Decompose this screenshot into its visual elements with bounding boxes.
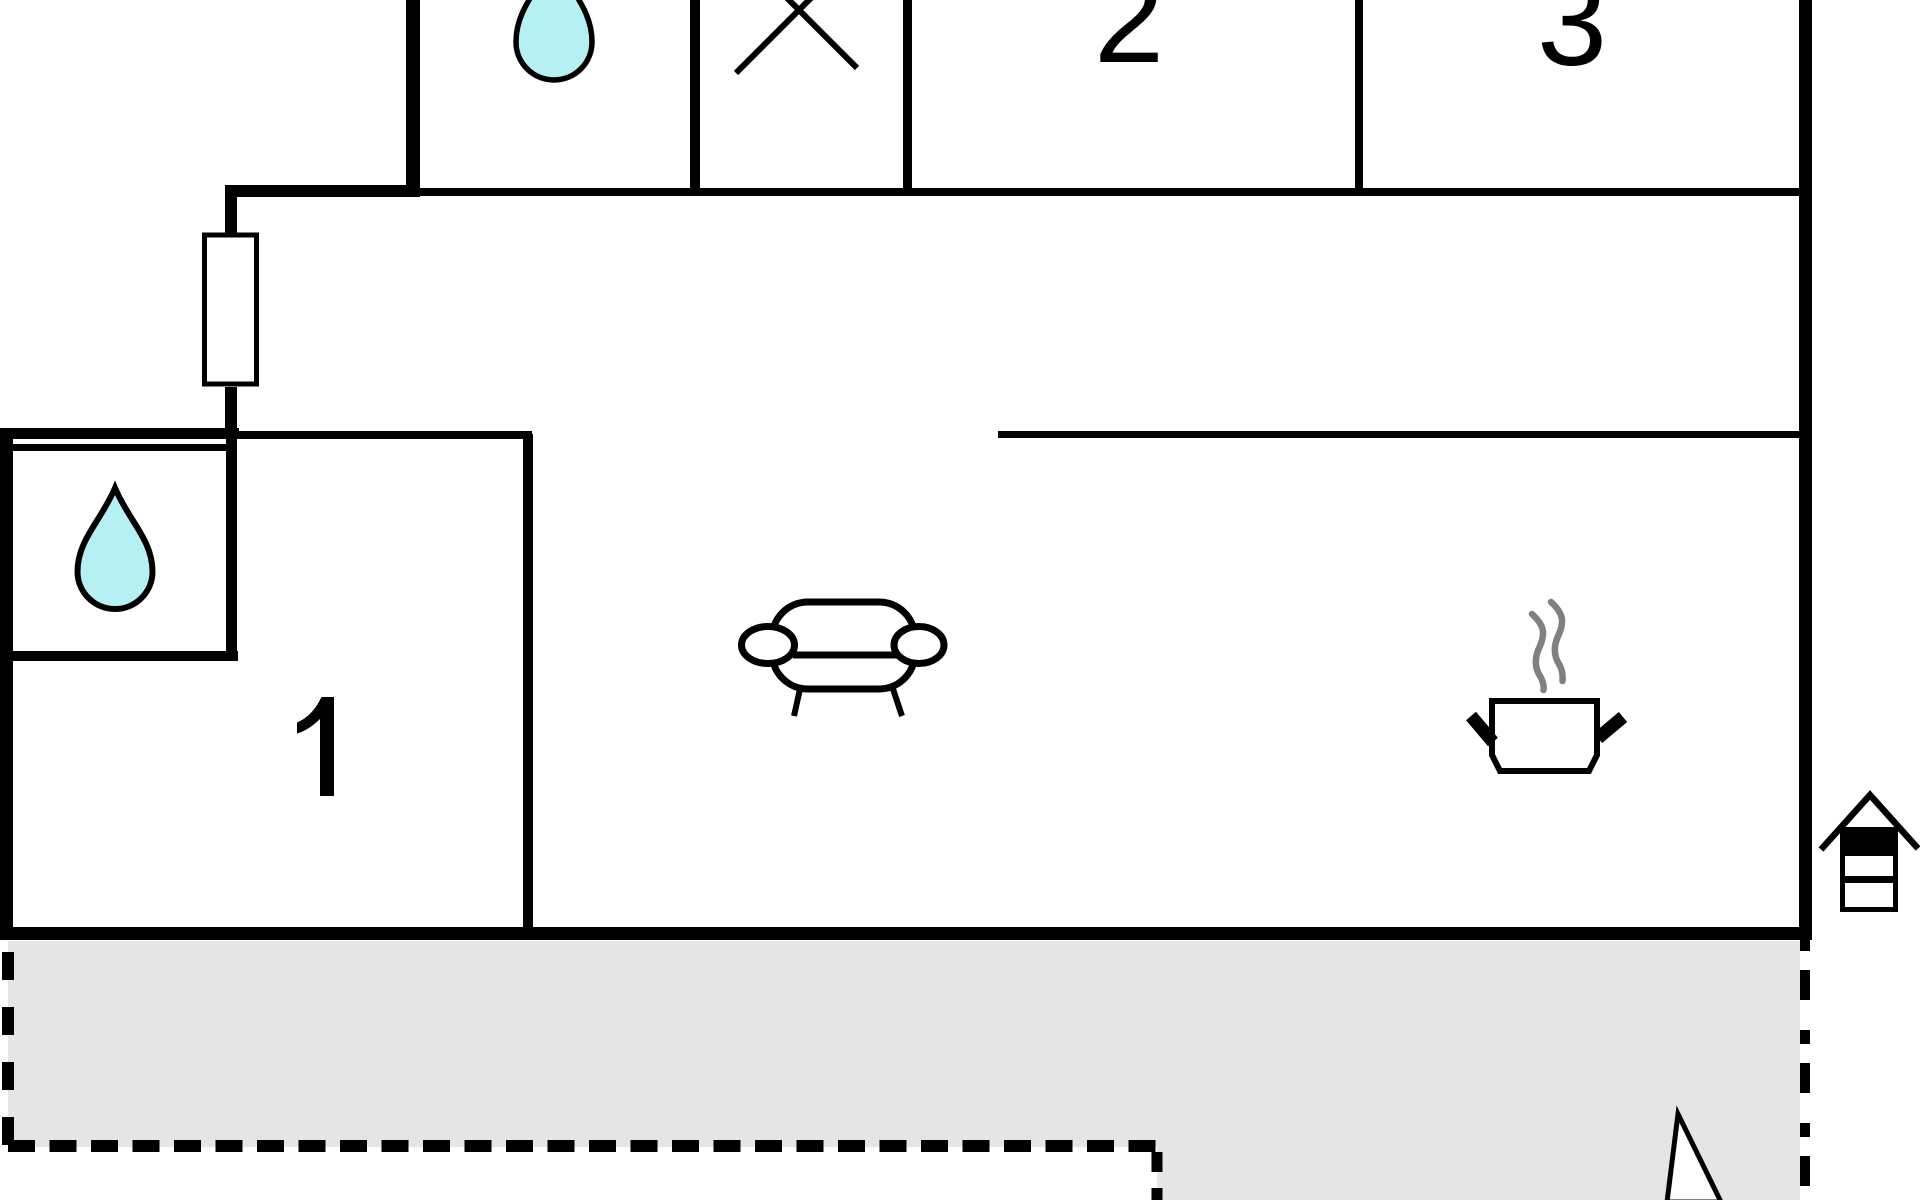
svg-text:3: 3 — [1537, 0, 1607, 92]
svg-text:2: 2 — [1094, 0, 1164, 89]
